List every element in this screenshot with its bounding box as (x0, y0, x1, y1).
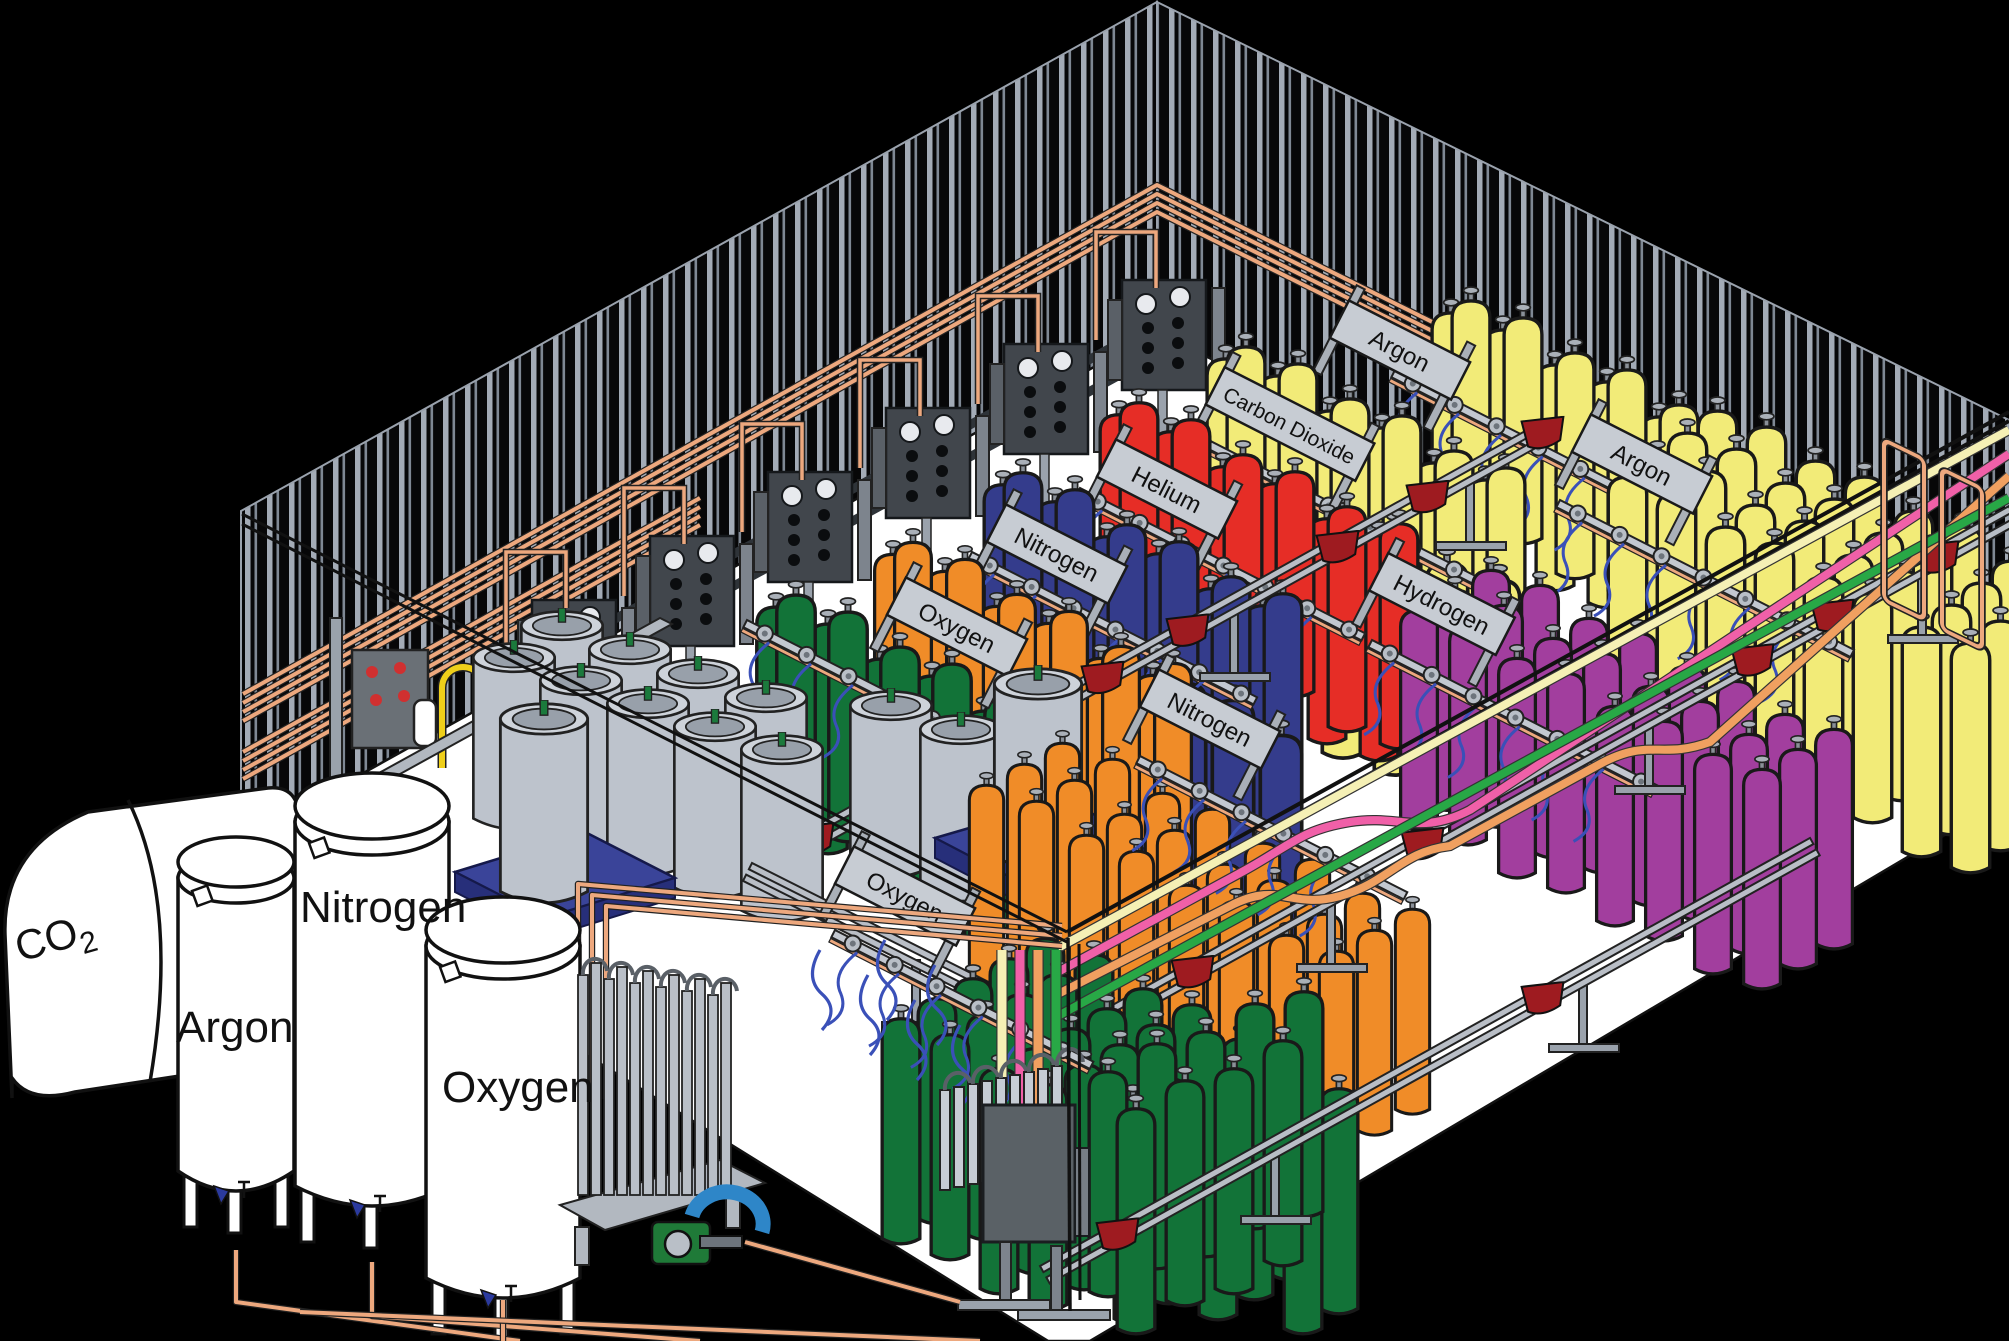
svg-text:Argon: Argon (176, 1003, 293, 1052)
svg-text:Nitrogen: Nitrogen (300, 883, 466, 932)
svg-text:Oxygen: Oxygen (442, 1063, 594, 1112)
